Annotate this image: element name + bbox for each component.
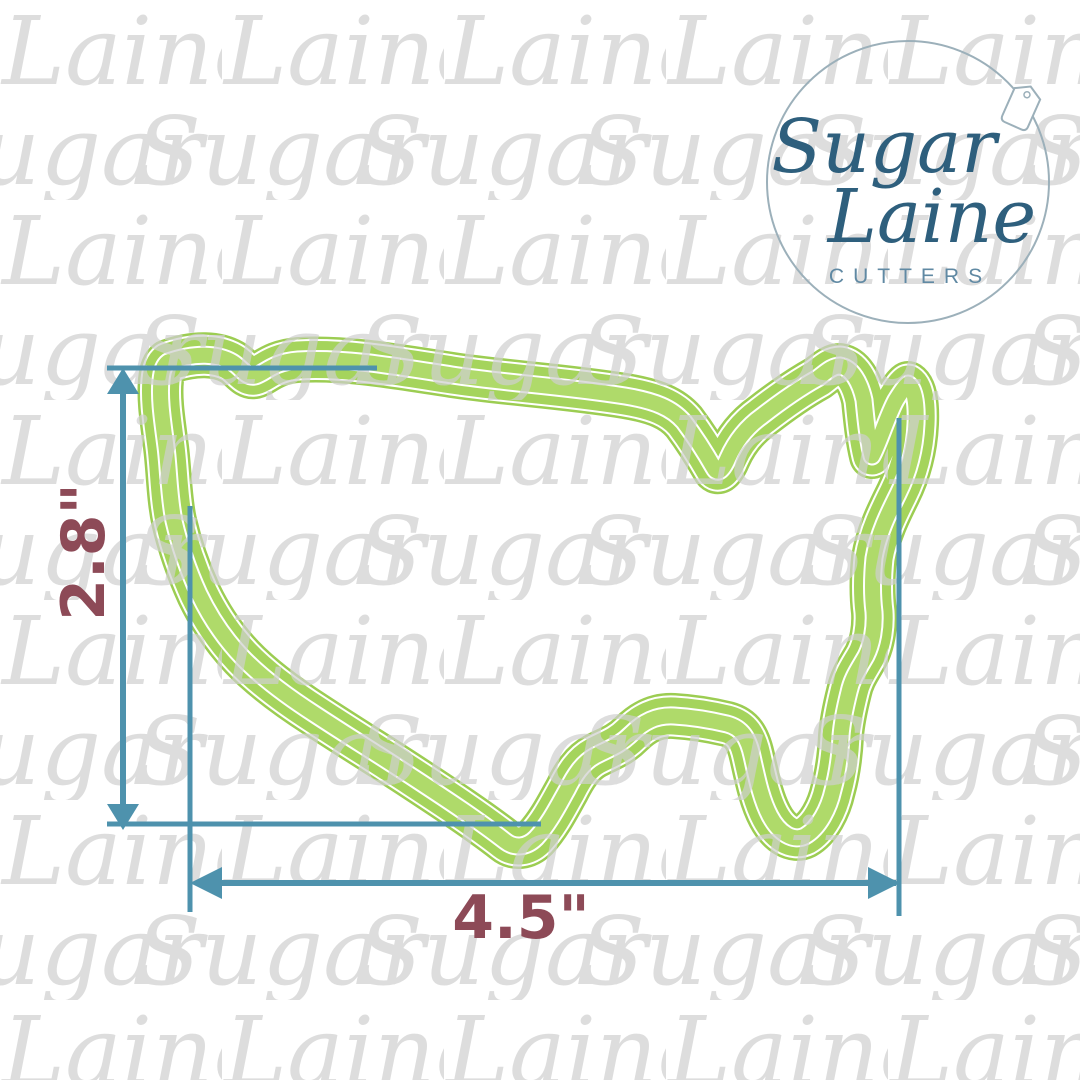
height-dimension-label: 2.8" [49, 483, 119, 621]
logo-subtitle: CUTTERS [829, 265, 991, 288]
product-image-canvas: Laine Sugar Sugar Sugar Laine [0, 0, 1080, 1080]
logo-script-bottom: Laine [826, 174, 1036, 260]
width-dimension-label: 4.5" [452, 883, 590, 953]
product-image: Laine Sugar Sugar Sugar Laine [0, 0, 1080, 1080]
